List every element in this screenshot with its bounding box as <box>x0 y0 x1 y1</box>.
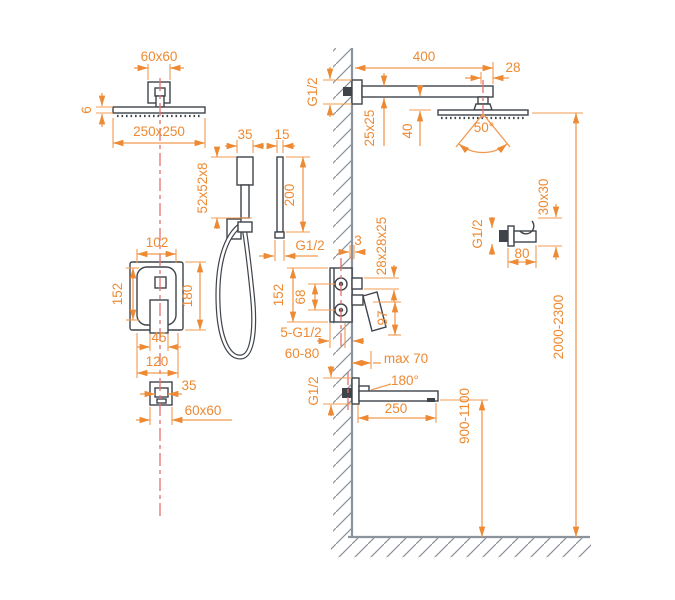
spout-aerator-front <box>157 399 166 403</box>
trim-height-label: 180 <box>180 285 195 308</box>
holder-escutcheon <box>508 226 514 246</box>
shower-arm <box>362 86 493 97</box>
bracket-clamp <box>238 222 252 232</box>
mixer-trim-front-view <box>130 262 183 333</box>
valve-cartridge-stub <box>352 278 362 289</box>
arm-wall-anchor <box>343 87 352 96</box>
arm-thread-label: G1/2 <box>305 77 320 106</box>
wall-offset-label: 3 <box>354 233 362 248</box>
handle-width-label: 45 <box>151 330 166 345</box>
hose-connector <box>275 232 284 238</box>
embed-depth-label: 60-80 <box>285 346 320 361</box>
trim-inner-height-label: 152 <box>110 283 125 306</box>
spout-escutcheon-side <box>352 378 359 404</box>
holder-section-label: 30x30 <box>536 179 551 216</box>
spout-tube <box>359 391 438 401</box>
lever-drop-label: 97 <box>375 310 390 325</box>
head-thickness-label: 6 <box>79 106 94 114</box>
note-connections: 5-G1/2 <box>280 325 321 340</box>
arm-escutcheon <box>352 80 362 104</box>
handshower-length-label: 200 <box>282 184 297 207</box>
hose-thread-label: G1/2 <box>295 238 324 253</box>
valve-height-label: 152 <box>271 284 286 307</box>
holder-wall-anchor <box>499 230 508 242</box>
spout-body-front <box>155 388 168 397</box>
spout-escutcheon-label: 60x60 <box>185 403 222 418</box>
holder-thread-label: G1/2 <box>470 219 485 248</box>
handshower-width-label: 35 <box>237 127 252 142</box>
handshower-depth-label: 15 <box>274 127 289 142</box>
spout-swivel-label: 180° <box>391 373 419 388</box>
head-height-label: 2000-2300 <box>551 295 566 360</box>
holder-arm <box>514 231 536 242</box>
port-spacing-label: 68 <box>293 289 308 304</box>
head-offset-label: 28 <box>505 60 520 75</box>
arm-section-label: 25x25 <box>362 110 377 147</box>
spout-height-label: 900-1100 <box>457 388 472 444</box>
handshower-head-label: 52x52x8 <box>195 162 210 213</box>
head-size-label: 250x250 <box>133 124 185 139</box>
holder-length-label: 80 <box>514 246 529 261</box>
max-depth-label: max 70 <box>384 351 428 366</box>
spout-aerator-side <box>427 398 435 402</box>
shower-head-plate-front <box>113 107 205 113</box>
spout-wall-anchor <box>342 388 352 398</box>
connections-note-label: 5-G1/2 <box>280 325 321 340</box>
spout-thread-label: G1/2 <box>306 376 321 405</box>
spout-front-width-label: 35 <box>181 378 196 393</box>
shower-installation-diagram: 60x60 6 250x250 35 15 52x52x8 200 <box>0 0 675 600</box>
trim-width-label: 120 <box>146 354 169 369</box>
valve-section-label: 28x28x25 <box>374 217 389 276</box>
arm-length-label: 400 <box>413 49 436 64</box>
head-drop-label: 40 <box>400 123 415 138</box>
lever-hub <box>352 295 363 305</box>
trim-inner-width-label: 102 <box>146 235 169 250</box>
hand-shower-head <box>237 157 253 185</box>
spout-length-label: 250 <box>385 401 408 416</box>
mixer-handle-front <box>150 300 168 333</box>
hand-shower-handle <box>241 185 249 218</box>
ceiling-arm-size-label: 60x60 <box>141 49 178 64</box>
spray-angle-label: 50° <box>474 120 494 135</box>
floor-hatch <box>331 537 591 557</box>
drawing-canvas: 60x60 6 250x250 35 15 52x52x8 200 <box>0 0 675 600</box>
